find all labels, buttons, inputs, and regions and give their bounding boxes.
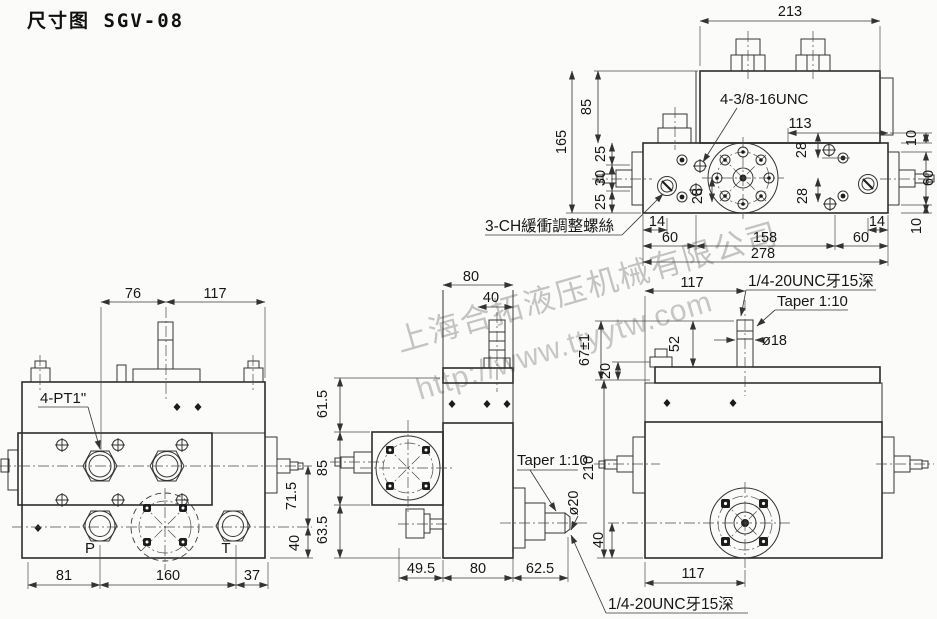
dim-158: 158	[753, 230, 777, 246]
dim-165: 165	[554, 130, 570, 154]
taper-label: Taper 1:10	[777, 293, 848, 310]
dim-phi20: ø20	[566, 491, 582, 516]
dim-10b: 10	[909, 218, 925, 234]
dim-40-end: 40	[591, 532, 607, 548]
dim-40-front: 40	[287, 535, 303, 551]
dim-62-5: 62.5	[526, 561, 554, 577]
diamond-mark	[664, 399, 671, 407]
end-top-plate	[655, 367, 880, 383]
drawing-canvas: 上海合拓液压机械有限公司 http://www.ttyytw.com 尺寸图 S…	[0, 0, 937, 619]
hex-bolt	[31, 355, 50, 390]
diamond-mark	[449, 400, 456, 408]
dim-71-5: 71.5	[284, 482, 300, 510]
dim-60r: 60	[921, 170, 937, 186]
dim-67: 67±1	[577, 334, 593, 366]
dim-210: 210	[581, 456, 597, 480]
hex-bolt	[731, 31, 765, 79]
dim-37: 37	[244, 568, 260, 584]
diamond-mark	[174, 403, 181, 411]
thread-label-top: 1/4-20UNC牙15深	[748, 272, 874, 290]
dim-76: 76	[125, 286, 141, 302]
dim-25a: 25	[593, 146, 609, 162]
dim-10a: 10	[904, 130, 920, 146]
dim-20: 20	[598, 363, 614, 379]
dim-60br: 60	[853, 230, 869, 246]
port-p-label: P	[85, 540, 95, 557]
dim-85: 85	[579, 99, 595, 115]
dim-28c: 28	[690, 188, 706, 204]
dimension-drawing-page: 上海合拓液压机械有限公司 http://www.ttyytw.com 尺寸图 S…	[0, 0, 937, 619]
thread-label: 4-3/8-16UNC	[720, 91, 809, 108]
side-fitting	[876, 456, 934, 472]
dim-40-top: 40	[483, 290, 499, 306]
dim-117-bottom: 117	[681, 566, 704, 582]
dim-278: 278	[751, 246, 775, 262]
hex-bolt	[796, 31, 830, 79]
dim-25b: 25	[593, 194, 609, 210]
hex-bolt	[244, 355, 263, 390]
ports-label: 4-PT1"	[40, 390, 86, 407]
stem	[737, 300, 753, 396]
dim-28b: 28	[795, 188, 811, 204]
dim-14l: 14	[649, 214, 665, 230]
flange-circle	[702, 137, 784, 219]
dim-80-bottom: 80	[470, 561, 486, 577]
dim-85-side: 85	[315, 460, 331, 476]
flange-circle	[608, 482, 792, 568]
small-stem	[117, 365, 126, 382]
dim-49-5: 49.5	[407, 561, 435, 577]
dim-28a: 28	[794, 142, 810, 158]
cushion-screw-label: 3-CH緩衝調整螺絲	[485, 217, 614, 235]
dim-60bl: 60	[662, 230, 678, 246]
dim-61-5: 61.5	[315, 390, 331, 418]
dim-30: 30	[593, 170, 609, 186]
cushion-screw	[859, 175, 878, 194]
center-boss	[133, 307, 200, 400]
diamond-mark	[195, 403, 202, 411]
dim-213: 213	[778, 4, 802, 20]
mount-screws	[55, 438, 189, 507]
dim-14r: 14	[869, 214, 885, 230]
diamond-mark	[504, 400, 511, 408]
dim-113: 113	[788, 116, 811, 132]
port-t	[216, 511, 250, 541]
dim-117-front: 117	[203, 286, 226, 302]
top-view: 4-3/8-16UNC 3-CH緩衝調整螺絲 213 85 165 25 30 …	[485, 4, 937, 266]
port-t-label: T	[221, 540, 230, 557]
cushion-screw	[658, 177, 677, 196]
front-view-body	[22, 382, 265, 558]
diamond-mark	[730, 399, 737, 407]
dim-117-top: 117	[680, 275, 703, 291]
side-view-body	[443, 423, 513, 558]
dim-160: 160	[156, 568, 180, 584]
diamond-mark	[35, 524, 42, 532]
lid-strip	[645, 383, 882, 422]
diamond-mark	[484, 400, 491, 408]
dim-81: 81	[56, 568, 72, 584]
front-view: 4-PT1" P T 76 117 81 160 37 71.5 40	[0, 286, 313, 589]
watermark: 上海合拓液压机械有限公司 http://www.ttyytw.com	[392, 216, 782, 407]
dim-52: 52	[667, 336, 683, 352]
thread-label-bottom: 1/4-20UNC牙15深	[608, 595, 734, 613]
dim-63-5: 63.5	[315, 516, 331, 544]
page-title: 尺寸图 SGV-08	[27, 9, 184, 32]
dim-phi18: ø18	[762, 333, 787, 349]
port-p	[83, 511, 117, 541]
taper-label: Taper 1:10	[517, 452, 588, 469]
dim-80-top: 80	[463, 269, 479, 285]
side-flange-plate	[360, 420, 452, 515]
